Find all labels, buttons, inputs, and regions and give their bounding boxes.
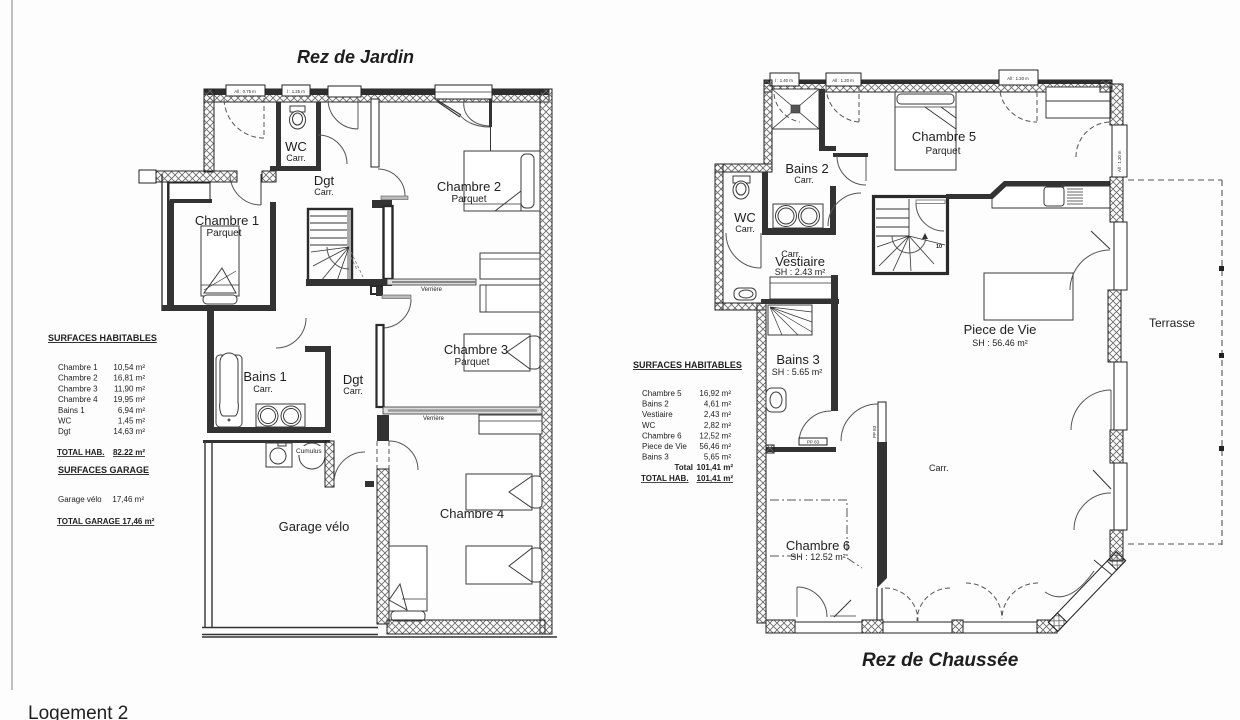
svg-text:Garage vélo: Garage vélo [58, 495, 102, 504]
svg-text:SURFACES GARAGE: SURFACES GARAGE [58, 465, 149, 475]
svg-text:101,41 m²: 101,41 m² [697, 463, 734, 472]
svg-text:Chambre 5: Chambre 5 [642, 389, 682, 398]
svg-text:TOTAL HAB.: TOTAL HAB. [57, 448, 105, 457]
svg-text:WC: WC [734, 210, 756, 225]
svg-text:Verrière: Verrière [423, 416, 445, 422]
svg-text:2,82 m²: 2,82 m² [704, 421, 731, 430]
svg-text:12,52 m²: 12,52 m² [699, 431, 731, 440]
svg-text:Bains 2: Bains 2 [642, 400, 669, 409]
svg-text:Carr.: Carr. [929, 463, 949, 473]
svg-text:Carr.: Carr. [794, 175, 814, 185]
svg-text:11,90 m²: 11,90 m² [114, 384, 145, 393]
svg-text:Chambre 1: Chambre 1 [195, 213, 259, 228]
svg-text:Parquet: Parquet [206, 228, 241, 239]
svg-text:SH : 56.46 m²: SH : 56.46 m² [972, 338, 1028, 348]
svg-text:1,45 m²: 1,45 m² [118, 417, 145, 426]
svg-text:Dgt: Dgt [314, 173, 335, 188]
svg-text:Parquet: Parquet [451, 194, 486, 205]
svg-text:Chambre 4: Chambre 4 [58, 395, 98, 404]
svg-text:Dgt: Dgt [343, 372, 364, 387]
svg-text:WC: WC [58, 417, 72, 426]
svg-text:Dgt: Dgt [58, 427, 71, 436]
svg-text:Bains 1: Bains 1 [243, 369, 286, 384]
svg-text:Cumulus: Cumulus [296, 448, 322, 455]
svg-text:Carr.: Carr. [314, 187, 334, 197]
svg-text:4,61 m²: 4,61 m² [704, 400, 731, 409]
svg-text:Chambre 1: Chambre 1 [58, 363, 98, 372]
svg-text:17,46 m²: 17,46 m² [112, 495, 144, 504]
svg-text:SURFACES HABITABLES: SURFACES HABITABLES [48, 333, 157, 343]
svg-text:Carr.: Carr. [343, 386, 363, 396]
svg-text:Carr.: Carr. [253, 384, 273, 394]
svg-text:SH : 2.43 m²: SH : 2.43 m² [775, 267, 826, 277]
svg-text:56,46 m²: 56,46 m² [699, 442, 731, 451]
svg-text:Carr.: Carr. [286, 153, 306, 163]
svg-text:19,95 m²: 19,95 m² [113, 395, 145, 404]
svg-text:Bains 2: Bains 2 [785, 161, 828, 176]
svg-text:WC: WC [642, 421, 656, 430]
svg-text:Carr.: Carr. [735, 224, 755, 234]
svg-text:PP 83: PP 83 [872, 425, 877, 438]
svg-text:6,94 m²: 6,94 m² [118, 406, 145, 415]
svg-text:All : 1.20 m: All : 1.20 m [1117, 150, 1122, 172]
svg-text:2,43 m²: 2,43 m² [704, 410, 731, 419]
svg-text:Chambre 5: Chambre 5 [912, 129, 976, 144]
svg-text:Rez de Jardin: Rez de Jardin [297, 47, 414, 67]
svg-text:Chambre 3: Chambre 3 [444, 342, 508, 357]
svg-text:Vestiaire: Vestiaire [642, 410, 673, 419]
svg-text:SH : 5.65 m²: SH : 5.65 m² [772, 367, 823, 377]
svg-text:All : 0.75 m: All : 0.75 m [234, 89, 256, 94]
svg-text:Bains 3: Bains 3 [776, 352, 819, 367]
svg-text:All : 1.20 m: All : 1.20 m [832, 78, 854, 83]
svg-text:Bains 3: Bains 3 [642, 453, 669, 462]
svg-text:16,81 m²: 16,81 m² [113, 374, 145, 383]
svg-text:Parquet: Parquet [925, 146, 960, 157]
svg-text:Chambre 3: Chambre 3 [58, 384, 98, 393]
svg-text:10: 10 [936, 244, 942, 250]
svg-text:Chambre 2: Chambre 2 [58, 374, 98, 383]
svg-text:TOTAL GARAGE 17,46 m²: TOTAL GARAGE 17,46 m² [57, 517, 155, 526]
svg-text:TOTAL HAB.: TOTAL HAB. [641, 474, 689, 483]
svg-text:16,92 m²: 16,92 m² [699, 389, 731, 398]
svg-text:l : 1.40 m: l : 1.40 m [775, 78, 793, 83]
svg-text:SH : 12.52 m²: SH : 12.52 m² [790, 552, 846, 562]
svg-text:82.22 m²: 82.22 m² [113, 448, 145, 457]
svg-text:Parquet: Parquet [454, 357, 489, 368]
svg-text:Verrière: Verrière [421, 287, 443, 293]
svg-text:14,63 m²: 14,63 m² [113, 427, 145, 436]
svg-text:10,54 m²: 10,54 m² [113, 363, 145, 372]
svg-text:101,41 m²: 101,41 m² [697, 474, 734, 483]
svg-text:Chambre 2: Chambre 2 [437, 179, 501, 194]
svg-text:5,65 m²: 5,65 m² [704, 453, 731, 462]
svg-text:SURFACES HABITABLES: SURFACES HABITABLES [633, 360, 742, 370]
svg-text:PP 83: PP 83 [807, 440, 820, 445]
svg-text:Piece de Vie: Piece de Vie [642, 442, 687, 451]
svg-text:Piece de Vie: Piece de Vie [964, 322, 1037, 337]
svg-text:All : 1.20 m: All : 1.20 m [1007, 76, 1029, 81]
svg-text:Chambre 6: Chambre 6 [786, 538, 850, 553]
svg-text:Chambre 6: Chambre 6 [642, 431, 682, 440]
svg-text:l : 1.25 m: l : 1.25 m [287, 89, 305, 94]
svg-text:Logement 2: Logement 2 [28, 703, 128, 720]
svg-text:WC: WC [285, 139, 307, 154]
svg-text:Garage vélo: Garage vélo [279, 519, 350, 534]
svg-text:Rez de Chaussée: Rez de Chaussée [862, 650, 1019, 671]
svg-text:Terrasse: Terrasse [1149, 316, 1195, 330]
svg-text:Total: Total [674, 463, 693, 472]
svg-text:Bains 1: Bains 1 [58, 406, 85, 415]
